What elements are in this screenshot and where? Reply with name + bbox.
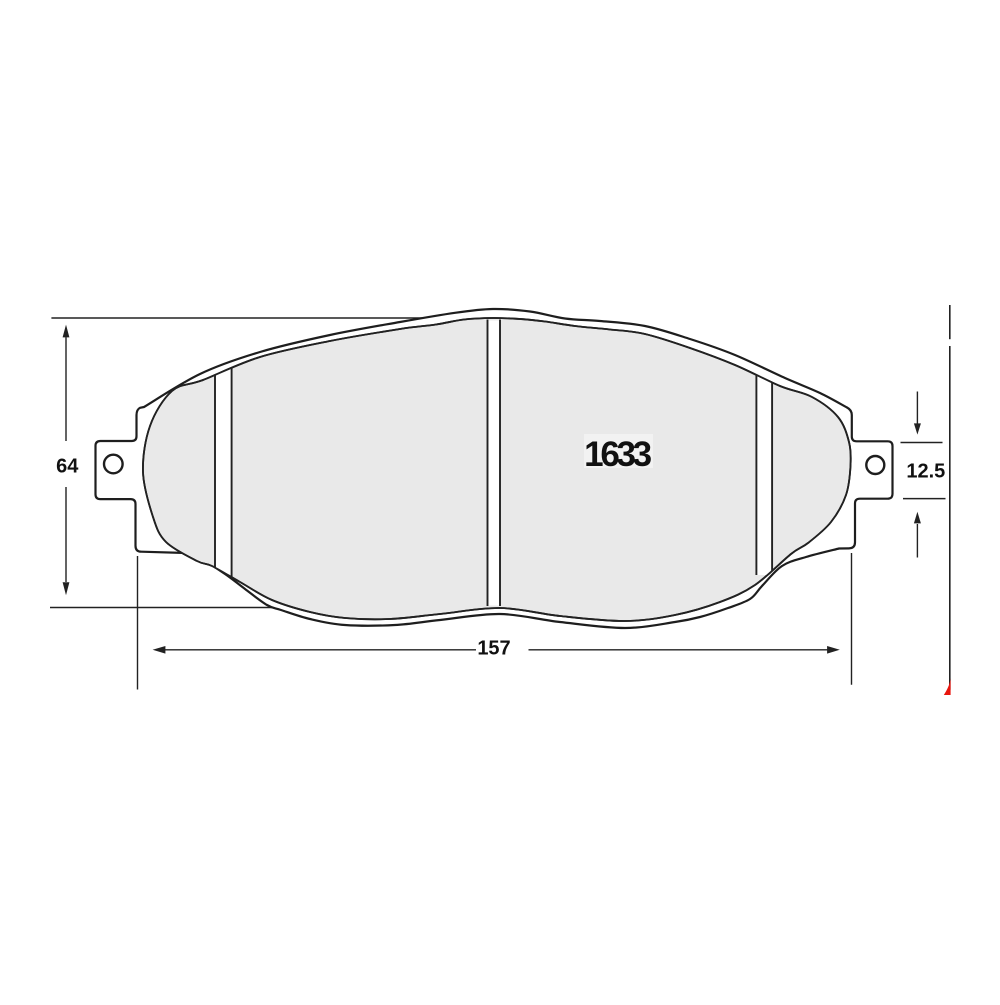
svg-text:157: 157	[477, 638, 510, 660]
svg-text:64: 64	[56, 455, 79, 477]
svg-text:1633: 1633	[584, 435, 651, 474]
svg-text:12.5: 12.5	[906, 460, 945, 482]
